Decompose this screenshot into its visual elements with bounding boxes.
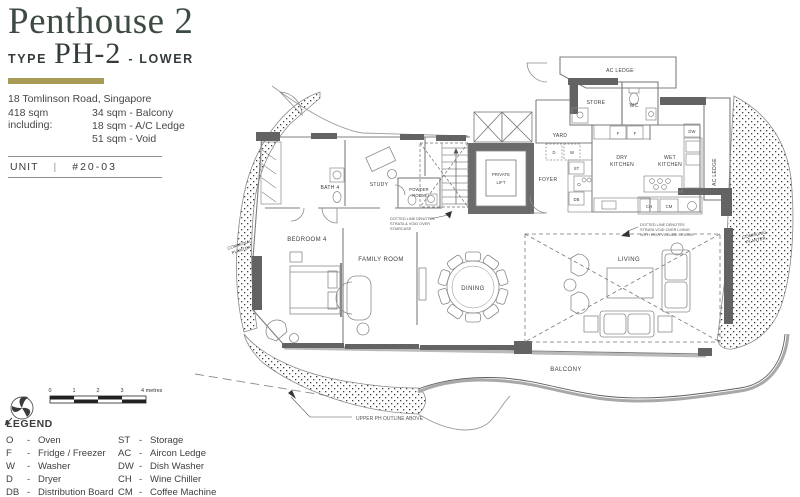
area-items: 34 sqm - Balcony 18 sqm - A/C Ledge 51 s… bbox=[92, 107, 185, 146]
unit-separator: | bbox=[54, 161, 58, 173]
tag-fridge-2: F bbox=[634, 131, 637, 136]
legend-row-fridge: F-Fridge / Freezer bbox=[6, 447, 118, 460]
bedroom-armchair bbox=[262, 316, 299, 344]
family-room-chaise bbox=[336, 268, 426, 335]
tag-oven: O bbox=[577, 182, 581, 187]
room-label-private-lift-2: LIFT bbox=[496, 180, 505, 185]
area-item-balcony: 34 sqm - Balcony bbox=[92, 107, 185, 119]
legend-separator: - bbox=[139, 461, 150, 472]
room-label-bedroom4: BEDROOM 4 bbox=[287, 237, 327, 243]
room-label-dry-kitchen-2: KITCHEN bbox=[610, 162, 634, 168]
floorplan-page: AC LEDGE STORE WC YARD DRY KITCHEN WET K… bbox=[0, 0, 800, 497]
room-label-wc: WC bbox=[630, 103, 639, 109]
legend-abbr: DW bbox=[118, 461, 139, 472]
legend-row-coffee-machine: CM-Coffee Machine bbox=[118, 486, 268, 497]
legend-row-washer: W-Washer bbox=[6, 460, 118, 473]
legend-separator: - bbox=[27, 435, 38, 446]
legend-desc: Storage bbox=[150, 435, 183, 446]
room-label-family-room: FAMILY ROOM bbox=[358, 257, 404, 263]
legend-column-2: ST-Storage AC-Aircon Ledge DW-Dish Washe… bbox=[118, 434, 268, 497]
area-label: 418 sqm including: bbox=[8, 107, 92, 146]
legend-abbr: DB bbox=[6, 487, 27, 497]
room-label-store: STORE bbox=[587, 100, 606, 106]
void-over-living bbox=[525, 234, 720, 342]
legend-desc: Dryer bbox=[38, 474, 61, 485]
legend-abbr: F bbox=[6, 448, 27, 459]
note-upper-ph-outline: UPPER PH OUTLINE ABOVE bbox=[356, 416, 424, 422]
legend-desc: Washer bbox=[38, 461, 70, 472]
legend-row-storage: ST-Storage bbox=[118, 434, 268, 447]
type-code: PH-2 bbox=[54, 37, 121, 71]
scale-tick-2: 2 bbox=[96, 388, 99, 394]
communal-planter-left bbox=[236, 92, 320, 332]
room-label-foyer: FOYER bbox=[539, 177, 558, 183]
legend-desc: Fridge / Freezer bbox=[38, 448, 106, 459]
scale-bar: 0 1 2 3 4 metres bbox=[48, 388, 162, 403]
legend-abbr: D bbox=[6, 474, 27, 485]
area-summary: 418 sqm including: 34 sqm - Balcony 18 s… bbox=[8, 107, 194, 146]
room-label-wet-kitchen-1: WET bbox=[664, 155, 676, 161]
room-label-private-lift-1: PRIVATE bbox=[492, 172, 510, 177]
room-label-bath4: BATH 4 bbox=[321, 185, 340, 191]
legend: LEGEND O-Oven F-Fridge / Freezer W-Washe… bbox=[6, 418, 268, 497]
tag-dryer: D bbox=[552, 150, 555, 155]
room-label-study: STUDY bbox=[370, 182, 389, 188]
legend-desc: Oven bbox=[38, 435, 61, 446]
tag-washer: W bbox=[570, 150, 574, 155]
scale-tick-1: 1 bbox=[72, 388, 75, 394]
legend-separator: - bbox=[139, 448, 150, 459]
area-item-ac-ledge: 18 sqm - A/C Ledge bbox=[92, 120, 185, 132]
unit-label: UNIT bbox=[10, 161, 39, 173]
type-suffix: - LOWER bbox=[128, 52, 193, 66]
accent-bar bbox=[8, 78, 104, 84]
area-item-void: 51 sqm - Void bbox=[92, 133, 185, 145]
note-living-line-3: WITH HIGH VOLUME CEILING bbox=[640, 233, 694, 237]
tag-wine-chiller: CH bbox=[646, 204, 652, 209]
legend-row-oven: O-Oven bbox=[6, 434, 118, 447]
room-label-powder-room-2: ROOM bbox=[412, 193, 426, 198]
legend-desc: Dish Washer bbox=[150, 461, 204, 472]
scale-tick-0: 0 bbox=[48, 388, 51, 394]
note-void-over-living: DOTTED LINE DENOTES STRATA VOID OVER LIV… bbox=[621, 223, 694, 237]
legend-abbr: CH bbox=[118, 474, 139, 485]
legend-column-1: O-Oven F-Fridge / Freezer W-Washer D-Dry… bbox=[6, 434, 118, 497]
room-label-ac-ledge-top: AC LEDGE bbox=[606, 68, 634, 74]
note-stair-line-2: STRATA & VOID OVER bbox=[390, 222, 430, 226]
legend-abbr: AC bbox=[118, 448, 139, 459]
room-label-balcony: BALCONY bbox=[550, 367, 581, 373]
legend-row-distribution-board: DB-Distribution Board bbox=[6, 486, 118, 497]
legend-separator: - bbox=[139, 474, 150, 485]
legend-row-aircon-ledge: AC-Aircon Ledge bbox=[118, 447, 268, 460]
unit-number: #20-03 bbox=[72, 161, 117, 173]
legend-row-dish-washer: DW-Dish Washer bbox=[118, 460, 268, 473]
legend-separator: - bbox=[27, 474, 38, 485]
note-void-over-staircase: DOTTED LINE DENOTES STRATA & VOID OVER S… bbox=[390, 211, 452, 231]
room-label-living: LIVING bbox=[618, 257, 640, 263]
legend-desc: Aircon Ledge bbox=[150, 448, 206, 459]
legend-abbr: ST bbox=[118, 435, 139, 446]
note-living-line-1: DOTTED LINE DENOTES bbox=[640, 223, 685, 227]
legend-abbr: CM bbox=[118, 487, 139, 497]
legend-title: LEGEND bbox=[6, 418, 268, 430]
tag-fridge-1: F bbox=[617, 131, 620, 136]
legend-separator: - bbox=[139, 435, 150, 446]
legend-row-dryer: D-Dryer bbox=[6, 473, 118, 486]
legend-abbr: O bbox=[6, 435, 27, 446]
study-desk bbox=[366, 147, 397, 179]
room-label-dining: DINING bbox=[461, 286, 484, 292]
room-label-wet-kitchen-2: KITCHEN bbox=[658, 162, 682, 168]
scale-end-label: 4 metres bbox=[141, 388, 163, 394]
unit-row: UNIT | #20-03 bbox=[8, 156, 162, 178]
legend-abbr: W bbox=[6, 461, 27, 472]
legend-desc: Wine Chiller bbox=[150, 474, 201, 485]
tag-storage: ST bbox=[574, 166, 580, 171]
tag-coffee-machine: CM bbox=[666, 204, 673, 209]
note-living-line-2: STRATA VOID OVER LIVING bbox=[640, 228, 690, 232]
note-stair-line-1: DOTTED LINE DENOTES bbox=[390, 217, 435, 221]
legend-desc: Coffee Machine bbox=[150, 487, 216, 497]
room-label-ac-ledge-right: AC LEDGE bbox=[712, 158, 718, 186]
legend-separator: - bbox=[27, 461, 38, 472]
legend-separator: - bbox=[27, 448, 38, 459]
note-stair-line-3: STAIRCASE bbox=[390, 227, 412, 231]
legend-separator: - bbox=[27, 487, 38, 497]
tag-distribution-board: DB bbox=[573, 197, 579, 202]
staircase bbox=[420, 143, 468, 208]
scale-tick-3: 3 bbox=[120, 388, 123, 394]
header: Penthouse 2 TYPE PH-2 - LOWER 18 Tomlins… bbox=[8, 2, 194, 178]
address: 18 Tomlinson Road, Singapore bbox=[8, 93, 194, 105]
bed bbox=[290, 252, 341, 317]
room-label-powder-room-1: POWDER bbox=[409, 187, 428, 192]
room-label-dry-kitchen-1: DRY bbox=[616, 155, 628, 161]
unit-type: TYPE PH-2 - LOWER bbox=[8, 37, 194, 71]
page-title: Penthouse 2 bbox=[8, 2, 194, 42]
legend-desc: Distribution Board bbox=[38, 487, 114, 497]
kitchen-fixtures bbox=[546, 108, 702, 214]
type-prefix: TYPE bbox=[8, 52, 47, 66]
tag-dish-washer: DW bbox=[688, 129, 695, 134]
room-label-yard: YARD bbox=[553, 133, 568, 139]
legend-row-wine-chiller: CH-Wine Chiller bbox=[118, 473, 268, 486]
legend-separator: - bbox=[139, 487, 150, 497]
private-lift-block bbox=[468, 112, 534, 214]
